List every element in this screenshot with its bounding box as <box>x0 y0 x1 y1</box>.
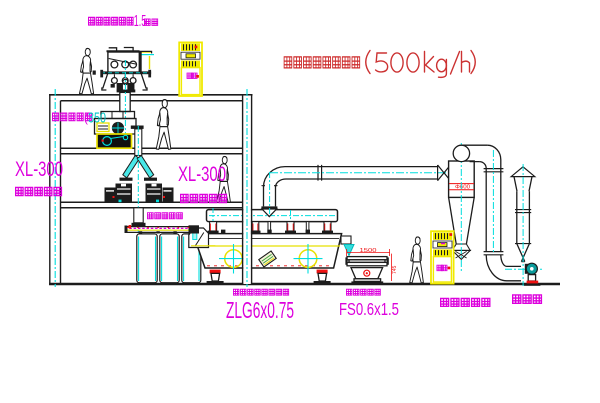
svg-text:XL-300: XL-300 <box>15 157 63 181</box>
svg-text:745: 745 <box>392 265 398 274</box>
svg-text:Φ600: Φ600 <box>455 185 470 191</box>
svg-text:FS0.6x1.5: FS0.6x1.5 <box>339 299 399 319</box>
svg-text:1500: 1500 <box>360 248 377 254</box>
svg-text:ZLG6x0.75: ZLG6x0.75 <box>226 297 294 323</box>
svg-text:350: 350 <box>88 111 106 127</box>
svg-text:XL-300: XL-300 <box>178 162 226 186</box>
